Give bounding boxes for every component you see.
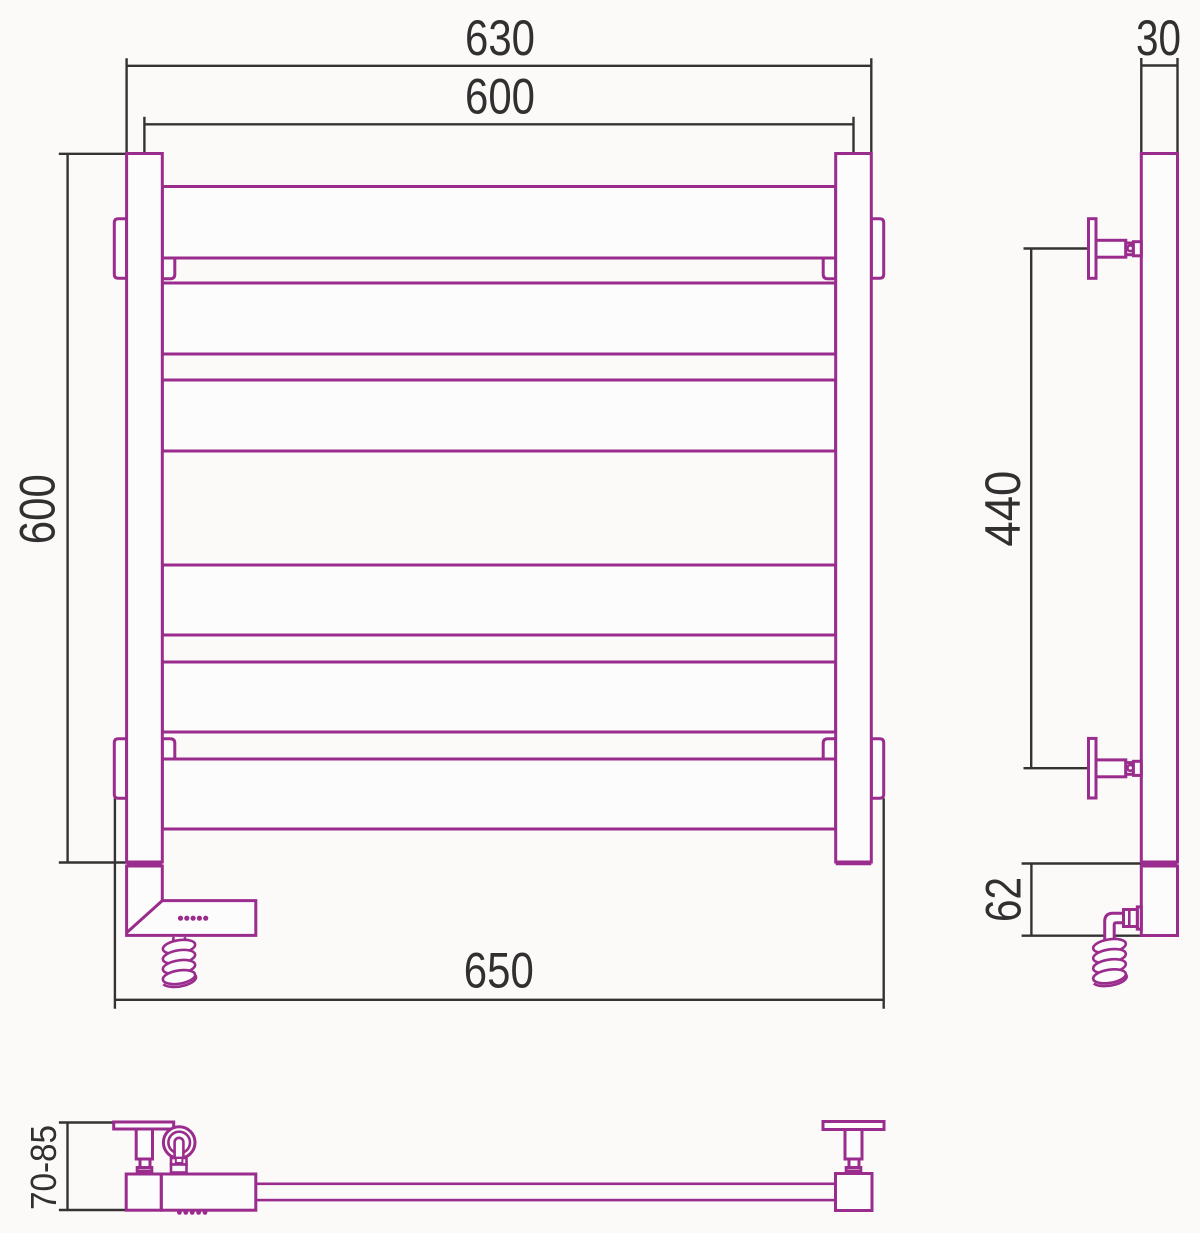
svg-text:630: 630	[465, 10, 535, 66]
svg-text:600: 600	[10, 474, 66, 544]
svg-text:440: 440	[975, 471, 1031, 547]
svg-text:30: 30	[1136, 10, 1181, 66]
svg-text:600: 600	[465, 68, 535, 124]
svg-text:650: 650	[464, 943, 534, 999]
svg-text:62: 62	[975, 877, 1031, 922]
svg-text:70-85: 70-85	[23, 1125, 64, 1210]
